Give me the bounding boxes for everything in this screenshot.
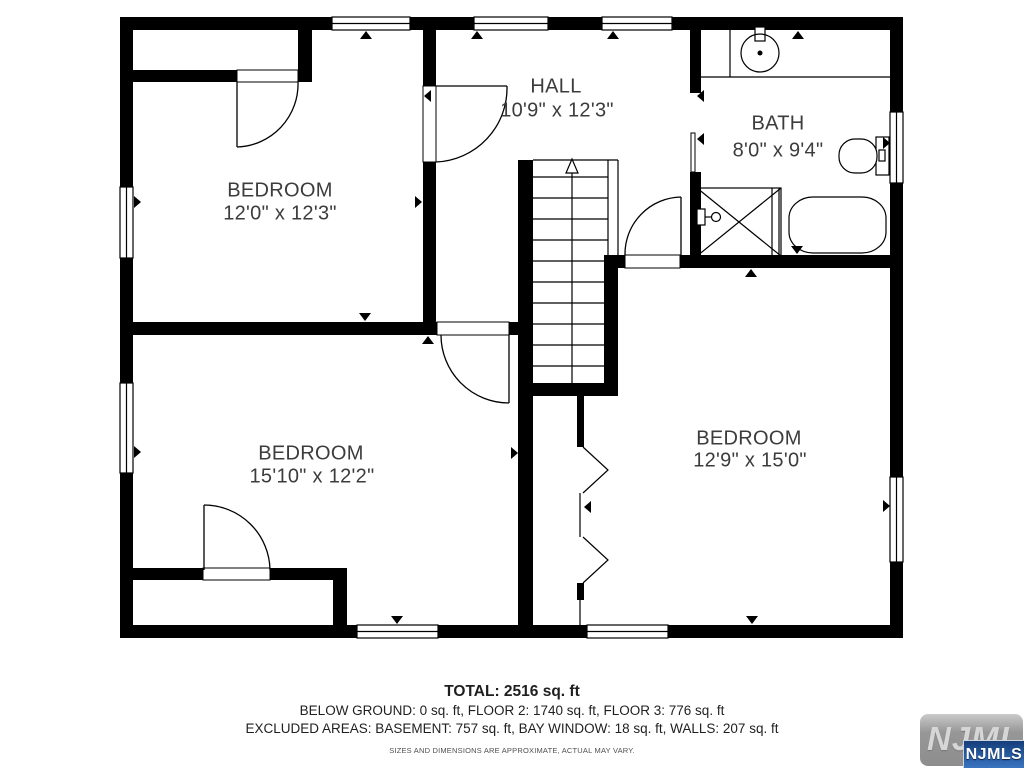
room-label-bedroom-2: BEDROOM (258, 443, 363, 466)
summary-floors: BELOW GROUND: 0 sq. ft, FLOOR 2: 1740 sq… (0, 703, 1024, 718)
njmls-badge: NJMLS (963, 740, 1024, 768)
toilet-bowl (839, 139, 877, 173)
room-label-bedroom-1: BEDROOM (227, 180, 332, 203)
room-dims-bath: 8'0" x 9'4" (733, 140, 824, 163)
stairs-up-arrow (566, 159, 578, 173)
bathtub-icon (789, 197, 886, 253)
room-dims-hall: 10'9" x 12'3" (500, 100, 614, 123)
summary-total: TOTAL: 2516 sq. ft (0, 683, 1024, 701)
floor-plan-page: BEDROOM 12'0" x 12'3" HALL 10'9" x 12'3"… (0, 0, 1024, 768)
summary-disclaimer: SIZES AND DIMENSIONS ARE APPROXIMATE, AC… (0, 746, 1024, 755)
room-dims-bedroom-2: 15'10" x 12'2" (249, 466, 374, 489)
room-dims-bedroom-1: 12'0" x 12'3" (223, 203, 337, 226)
closet-bifold-doors (580, 447, 608, 625)
room-label-bedroom-3: BEDROOM (696, 428, 801, 451)
room-label-bath: BATH (751, 113, 804, 136)
room-dims-bedroom-3: 12'9" x 15'0" (693, 450, 807, 473)
bath-pocket-door (691, 133, 695, 172)
njmls-badge-text: NJMLS (966, 746, 1023, 764)
shower-valve (697, 209, 705, 225)
summary-excluded: EXCLUDED AREAS: BASEMENT: 757 sq. ft, BA… (0, 721, 1024, 736)
room-label-hall: HALL (530, 76, 581, 99)
